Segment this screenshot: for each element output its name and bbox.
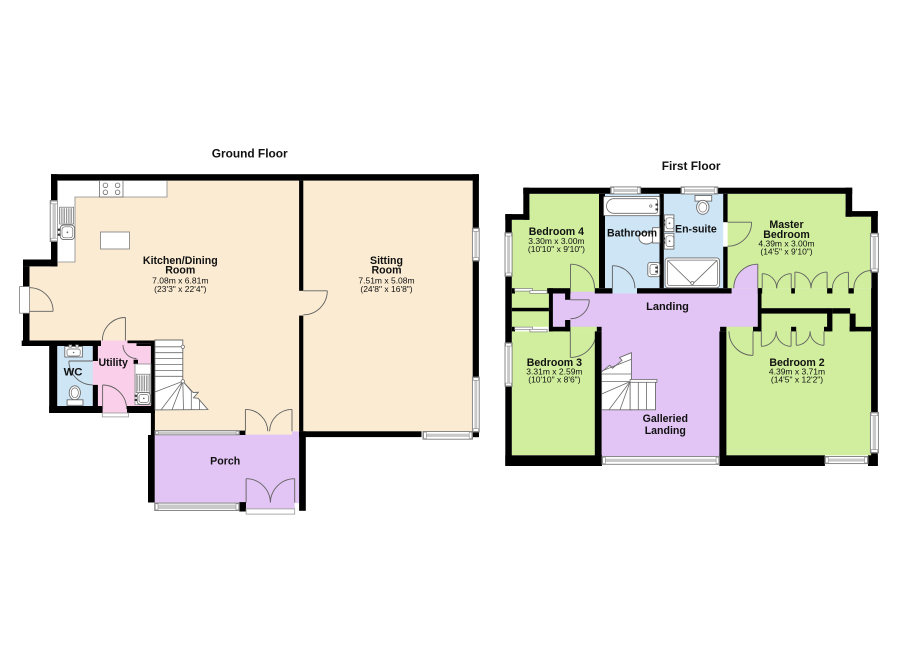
svg-text:Ground Floor: Ground Floor bbox=[212, 146, 288, 160]
svg-text:En-suite: En-suite bbox=[675, 223, 717, 235]
svg-text:First Floor: First Floor bbox=[662, 159, 721, 173]
svg-text:Landing: Landing bbox=[645, 425, 686, 437]
svg-text:(23'3" x 22'4"): (23'3" x 22'4") bbox=[154, 284, 206, 294]
svg-text:(14'5" x 12'2"): (14'5" x 12'2") bbox=[771, 374, 823, 384]
svg-text:(10'10" x 9'10"): (10'10" x 9'10") bbox=[528, 244, 585, 254]
svg-text:Galleried: Galleried bbox=[643, 413, 688, 425]
svg-text:(24'8" x 16'8"): (24'8" x 16'8") bbox=[360, 284, 412, 294]
svg-text:WC: WC bbox=[64, 367, 83, 379]
svg-text:Bathroom: Bathroom bbox=[607, 228, 657, 240]
svg-text:(14'5" x 9'10"): (14'5" x 9'10") bbox=[760, 246, 812, 256]
svg-text:Landing: Landing bbox=[646, 301, 689, 313]
svg-text:(10'10" x 8'6"): (10'10" x 8'6") bbox=[528, 374, 580, 384]
svg-text:Porch: Porch bbox=[210, 455, 240, 467]
svg-text:Utility: Utility bbox=[98, 357, 128, 369]
